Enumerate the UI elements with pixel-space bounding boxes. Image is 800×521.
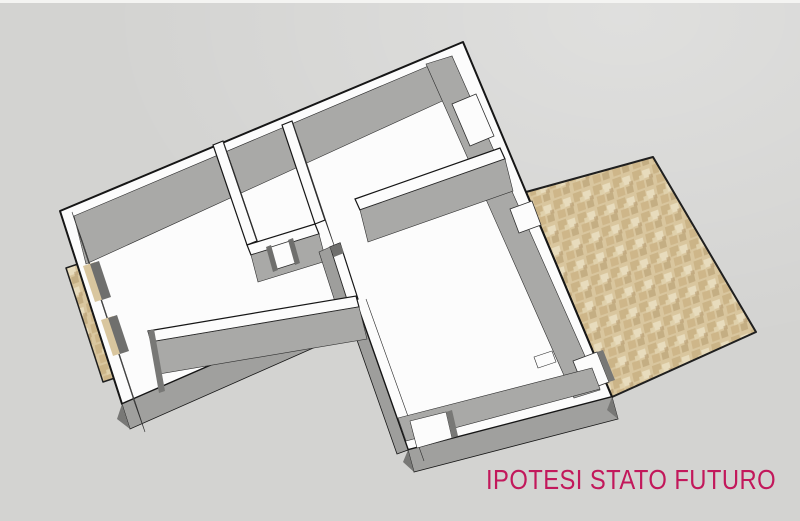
floorplan-3d-render: IPOTESI STATO FUTURO: [0, 0, 800, 521]
title-text: IPOTESI STATO FUTURO: [486, 464, 776, 495]
render-canvas: IPOTESI STATO FUTURO: [0, 0, 800, 521]
top-border-line: [0, 0, 800, 3]
